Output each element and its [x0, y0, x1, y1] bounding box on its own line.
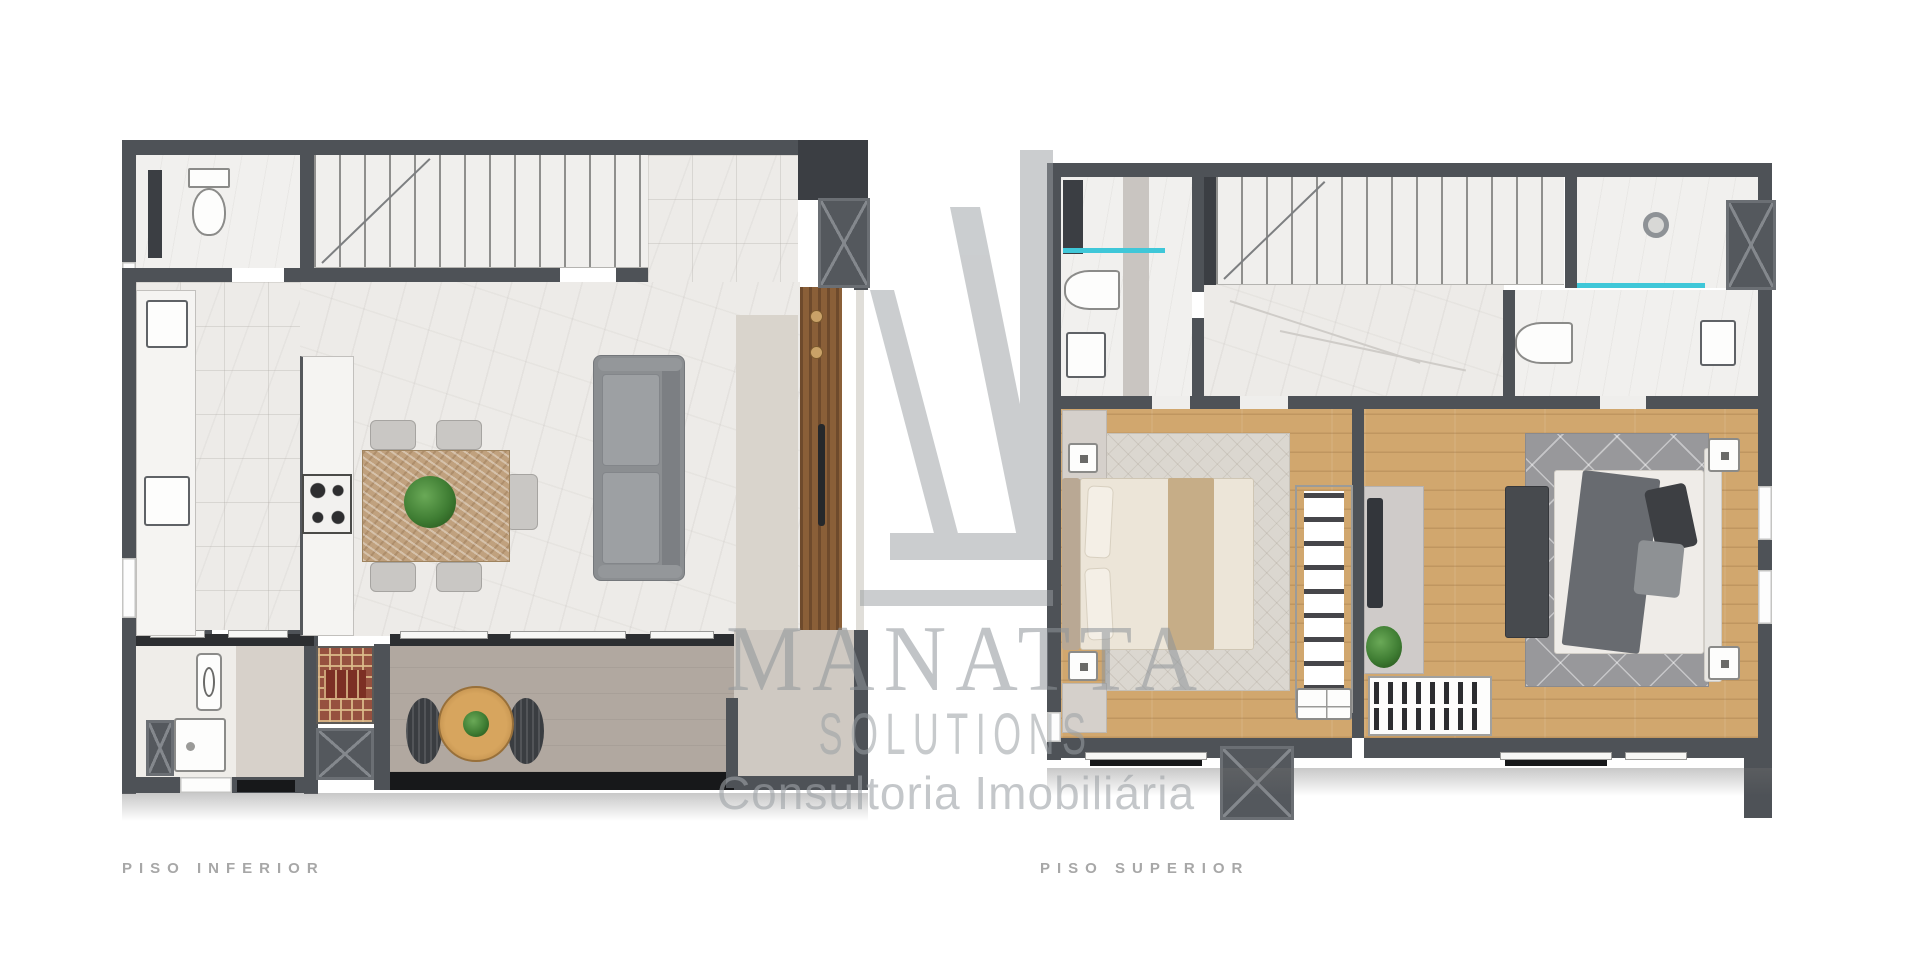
wall	[1352, 409, 1364, 738]
panel-knob	[810, 310, 823, 323]
door-opening	[1240, 396, 1288, 409]
window-sill	[400, 631, 488, 639]
elevator-shaft	[818, 198, 870, 288]
shower-head	[1643, 212, 1669, 238]
wall	[1192, 177, 1204, 292]
grill-embers	[324, 670, 366, 698]
shoes	[1374, 708, 1486, 730]
label-piso-inferior: PISO INFERIOR	[122, 860, 325, 877]
drawer-unit	[1296, 688, 1352, 720]
dining-chair	[436, 562, 482, 592]
balcony-granite-border	[390, 772, 734, 790]
dining-chair	[370, 562, 416, 592]
window-sill	[1500, 752, 1612, 760]
table-plant	[404, 476, 456, 528]
dining-chair	[506, 474, 538, 530]
vanity-sink	[1066, 332, 1106, 378]
window	[1758, 570, 1772, 624]
nightstand	[1068, 651, 1098, 681]
door-opening	[180, 777, 232, 793]
open-wardrobe	[1295, 485, 1353, 713]
wall	[854, 630, 868, 790]
plan-shadow	[122, 793, 868, 821]
window-sill	[650, 631, 714, 639]
shoe-rack	[1368, 676, 1492, 736]
sofa-armrest	[598, 358, 682, 371]
glass-wall	[856, 290, 864, 630]
bed-throw	[1168, 478, 1214, 650]
door-opening	[232, 268, 284, 282]
bed-bench	[1505, 486, 1549, 638]
panel-knob	[810, 346, 823, 359]
service-shaft	[146, 720, 174, 776]
wall	[1565, 177, 1577, 288]
wall	[734, 776, 868, 790]
window	[237, 780, 295, 792]
outdoor-chair	[406, 698, 442, 764]
manatta-logo-icon	[853, 148, 1053, 613]
toilet	[1064, 270, 1120, 310]
upper-hall-floor	[648, 155, 798, 282]
dining-chair	[436, 420, 482, 450]
shoes	[1374, 682, 1486, 704]
nightstand-lamp	[1721, 452, 1729, 460]
table-plant	[463, 711, 489, 737]
sofa-cushion	[602, 472, 660, 564]
nightstand-lamp	[1721, 660, 1729, 668]
nightstand-lamp	[1080, 455, 1088, 463]
sofa-cushion	[602, 374, 660, 466]
window	[1758, 486, 1772, 540]
wall	[726, 698, 738, 788]
wall	[122, 140, 868, 155]
wall	[374, 644, 390, 790]
nightstand-lamp	[1080, 663, 1088, 671]
nightstand	[1068, 443, 1098, 473]
toilet	[188, 168, 230, 188]
wall	[798, 140, 868, 200]
door-opening	[560, 268, 616, 282]
washing-machine	[196, 653, 222, 711]
wardrobe-panel	[1062, 683, 1107, 733]
shower-glass	[1063, 248, 1165, 253]
door-opening	[1600, 396, 1646, 409]
shower-glass	[1577, 283, 1705, 288]
staircase	[1216, 177, 1564, 285]
laundry-floor	[236, 644, 304, 778]
wall	[122, 268, 314, 282]
window	[122, 558, 136, 618]
label-piso-superior: PISO SUPERIOR	[1040, 860, 1249, 877]
floor-plant	[1366, 626, 1402, 668]
sofa-armrest	[598, 565, 682, 578]
plan-shadow	[1047, 768, 1772, 796]
toilet	[1515, 322, 1573, 364]
wall	[300, 155, 314, 282]
window-sill	[510, 631, 626, 639]
pillow	[1084, 485, 1114, 558]
outdoor-chair	[508, 698, 544, 764]
dining-chair	[370, 420, 416, 450]
wall	[1047, 163, 1772, 177]
vanity-sink	[1700, 320, 1736, 366]
window-sill	[1085, 752, 1207, 760]
panel-handle	[818, 424, 825, 526]
floor-plan-canvas: MANATTA SOLUTIONS Consultoria Imobiliári…	[0, 0, 1920, 964]
staircase	[314, 155, 648, 268]
wall	[122, 140, 136, 794]
elevator-shaft	[1726, 200, 1776, 290]
stove-cooktop	[302, 474, 352, 534]
wall	[1503, 290, 1515, 396]
window	[1047, 712, 1061, 742]
terrace-floor	[734, 630, 854, 776]
nightstand	[1708, 646, 1740, 680]
washer-door	[203, 667, 215, 697]
pillow	[1633, 540, 1684, 599]
wall	[1192, 318, 1204, 396]
sofa	[593, 355, 685, 581]
wall	[1047, 163, 1061, 760]
service-shaft	[316, 728, 374, 780]
door-opening	[1152, 396, 1190, 409]
toilet-bowl	[192, 188, 226, 236]
hallway-floor	[736, 315, 798, 636]
laundry-tank	[174, 718, 226, 772]
shower-glass	[148, 170, 162, 258]
bed-headboard	[1062, 478, 1080, 650]
pillow	[1084, 567, 1114, 640]
sofa-back	[662, 364, 680, 574]
nightstand	[1708, 438, 1740, 472]
window	[1090, 760, 1202, 766]
kitchen-sink	[146, 300, 188, 348]
wall	[1204, 177, 1216, 285]
tv	[1367, 498, 1383, 608]
window-sill	[1625, 752, 1687, 760]
kitchen-sink	[144, 476, 190, 526]
window	[1505, 760, 1607, 766]
shower-console	[1063, 180, 1083, 254]
window-sill	[228, 630, 288, 638]
tank-drain	[186, 742, 195, 751]
